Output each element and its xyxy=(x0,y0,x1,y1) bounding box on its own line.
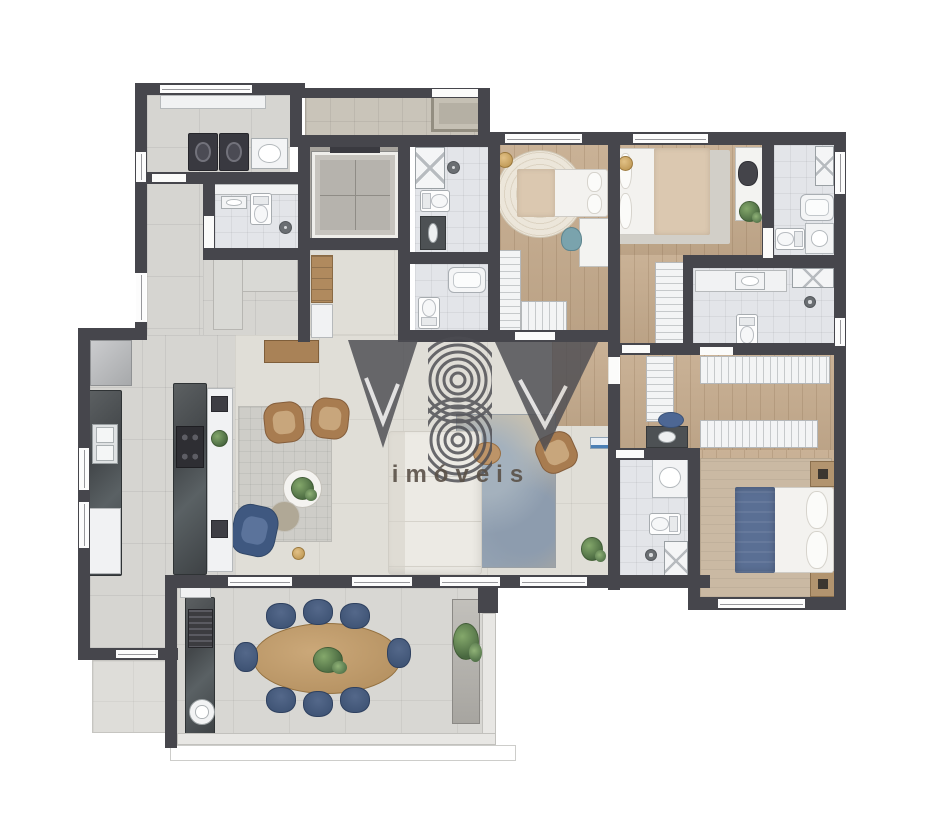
service-window-top xyxy=(160,85,252,93)
wardrobe-2 xyxy=(655,262,685,344)
maid-shower-head xyxy=(279,221,292,234)
kitchen-sink xyxy=(92,424,118,464)
dining-chair-3 xyxy=(340,603,370,629)
cooktop xyxy=(176,426,204,468)
dressing-table xyxy=(646,426,688,448)
kitchen-window-2 xyxy=(79,502,89,548)
coffee-table-plant xyxy=(291,477,314,500)
desk-1-chair xyxy=(561,227,582,251)
bath-right-wall xyxy=(488,147,500,342)
terrace-sink xyxy=(189,699,215,725)
hall-right-wall xyxy=(298,250,310,342)
masterbath-left-wall xyxy=(608,384,620,590)
toilet-2 xyxy=(418,297,440,329)
dining-chair-5 xyxy=(303,691,333,717)
kitchen-cabinet-low xyxy=(89,508,121,574)
pantry-plant xyxy=(211,430,228,447)
shower-1-head xyxy=(447,161,460,174)
hall-shelves xyxy=(311,255,333,303)
armchair-a xyxy=(262,400,306,445)
entry-door xyxy=(432,89,478,97)
hallway xyxy=(552,342,608,426)
laundry-door xyxy=(152,174,186,182)
alcove-door xyxy=(622,345,650,353)
pantry-appliance-b xyxy=(211,520,228,538)
elevator-left-wall xyxy=(298,147,310,250)
closet-wardrobe-bottom xyxy=(700,420,818,448)
bedroom-1-bottom-wall xyxy=(398,330,620,342)
dining-chair-1 xyxy=(266,603,296,629)
fridge xyxy=(90,340,132,386)
bed-2-pillow-b xyxy=(619,193,632,229)
suite-hall-door xyxy=(609,357,619,384)
vanity-1 xyxy=(420,216,446,250)
maid-bath-bottom-wall xyxy=(203,248,302,260)
elevator-sill xyxy=(330,146,380,153)
sofa xyxy=(388,431,482,575)
bedroom-2-window xyxy=(633,134,708,143)
dryer xyxy=(219,133,249,171)
master-shower-head xyxy=(645,549,657,561)
bath-window-right-2 xyxy=(835,318,845,346)
storage-shelf xyxy=(160,95,266,109)
elevator-bottom-wall xyxy=(298,238,410,250)
bath-window-right-1 xyxy=(835,152,845,194)
right-wall xyxy=(834,132,846,610)
shower-1 xyxy=(415,147,445,189)
ensuite-shower xyxy=(815,146,834,186)
hall-cabinet xyxy=(311,304,333,338)
shower-3-head xyxy=(804,296,816,308)
elevator-car xyxy=(312,152,398,238)
bed-1-blanket xyxy=(517,169,555,217)
patio xyxy=(92,660,175,733)
maid-bath-door xyxy=(204,216,214,248)
kitchen-window-1 xyxy=(79,448,89,490)
master-pillow-b xyxy=(806,531,828,569)
master-balcony-door xyxy=(718,599,805,608)
elevator-top-wall xyxy=(298,135,500,147)
kitchen-window-low xyxy=(116,650,158,658)
desk-2-plant xyxy=(739,201,760,222)
maid-toilet xyxy=(250,193,272,225)
closet-wardrobe-top xyxy=(700,356,830,384)
bath3-left-wall xyxy=(683,268,693,355)
nightstand-north xyxy=(810,461,836,487)
bedroom-1-window xyxy=(505,134,582,143)
dining-plant xyxy=(313,647,343,673)
dressing-stool xyxy=(658,412,684,428)
master-bath-door xyxy=(616,450,644,458)
dining-chair-6 xyxy=(340,687,370,713)
desk-1 xyxy=(579,218,609,267)
maid-sink xyxy=(221,196,247,209)
sideboard-plant xyxy=(453,623,479,660)
bedroom-divider-wall xyxy=(608,132,620,357)
master-toilet xyxy=(649,513,681,535)
floor-lamp xyxy=(292,547,305,560)
bed-1-pillow-b xyxy=(587,194,602,214)
master-pillow-a xyxy=(806,491,828,529)
terrace-slider-1 xyxy=(228,577,292,586)
toilet-1 xyxy=(420,190,450,212)
kitchen-island xyxy=(173,383,207,575)
bathroom-3-door xyxy=(700,347,733,355)
terrace-slider-3 xyxy=(440,577,500,586)
service-corridor xyxy=(147,172,203,342)
terrace-left-wall xyxy=(165,575,177,748)
bed-2-lamp xyxy=(618,156,633,171)
service-window-2 xyxy=(136,273,146,322)
bedroom-1-door xyxy=(515,332,555,340)
pantry-appliance-a xyxy=(211,396,228,412)
dining-chair-2 xyxy=(303,599,333,625)
shower-3 xyxy=(792,268,834,288)
ensuite-vanity xyxy=(805,223,834,254)
toilet-3 xyxy=(736,314,758,346)
master-vanity xyxy=(652,457,688,498)
console xyxy=(264,340,319,363)
terrace-railing-east xyxy=(482,613,496,745)
ensuite-2-door xyxy=(763,228,773,258)
washer xyxy=(188,133,218,171)
tub-2 xyxy=(448,267,486,293)
ensuite-toilet xyxy=(775,228,805,250)
bed-2-blanket xyxy=(654,148,710,235)
terrace-railing-south xyxy=(177,733,496,745)
grill xyxy=(188,609,213,648)
terrace-slider-4 xyxy=(520,577,587,586)
bath-divider-wall xyxy=(405,252,500,264)
armchair-b xyxy=(309,396,351,441)
terrace-slider-2 xyxy=(352,577,412,586)
desk-2-chair xyxy=(738,161,758,186)
living-plant xyxy=(581,537,603,561)
kitchen-left-wall xyxy=(78,328,90,660)
dining-chair-7 xyxy=(234,642,258,672)
utility-sink xyxy=(251,138,288,169)
dining-chair-8 xyxy=(387,638,411,668)
dining-chair-4 xyxy=(266,687,296,713)
closet-1-b xyxy=(521,301,567,331)
master-bed-blanket xyxy=(735,487,775,573)
pantry-column xyxy=(207,388,233,572)
nightstand-south xyxy=(810,571,836,597)
bed-1-pillow-a xyxy=(587,172,602,192)
ensuite-tub xyxy=(800,194,834,221)
bath-3-basin xyxy=(735,272,765,290)
balcony-edge xyxy=(170,745,516,761)
floor-plan: imóveis xyxy=(0,0,927,832)
service-window-1 xyxy=(136,152,146,182)
side-table xyxy=(473,442,501,465)
entry-cabinet-b xyxy=(213,252,243,330)
